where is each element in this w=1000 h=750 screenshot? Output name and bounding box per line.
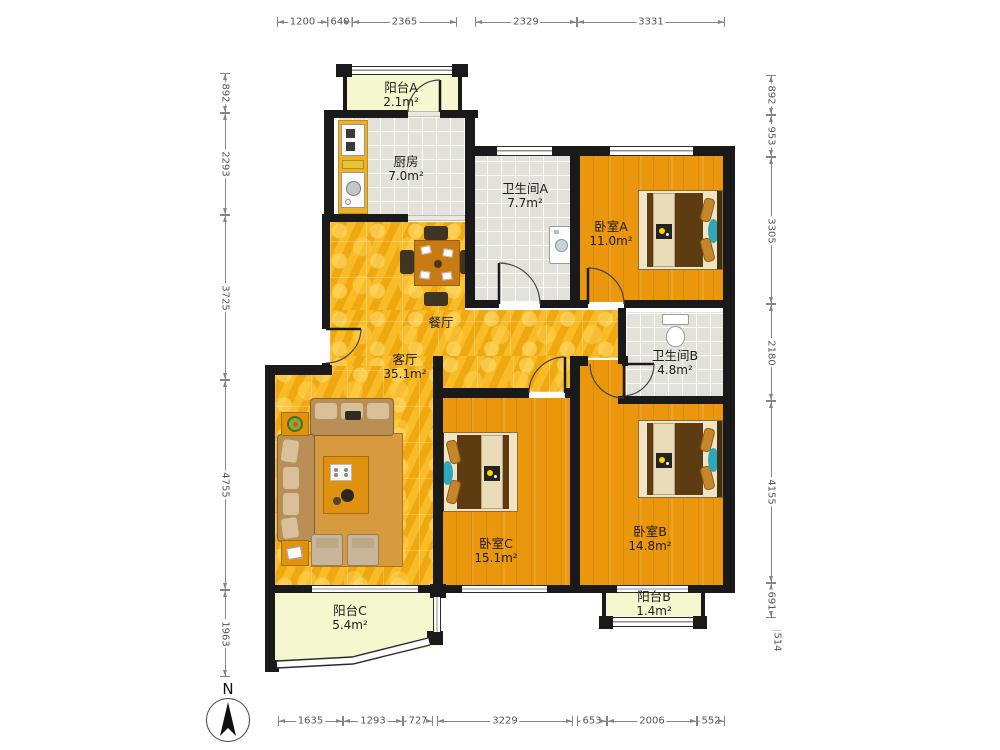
dining-chair-icon [400,250,414,274]
hall-floor [330,310,618,358]
window [312,585,418,593]
coffee-table-icon [323,456,369,514]
window [613,617,693,627]
room-label-bedroom-b: 卧室B14.8m² [628,524,671,553]
window [352,66,452,75]
sofa-icon [310,398,394,436]
kitchen-passage [408,215,465,221]
dimension-segment: 552 [697,714,725,728]
dimension-value: 2329 [511,17,540,28]
wall [723,146,735,593]
toilet-icon [662,314,689,349]
wall [265,585,312,593]
room-name: 客厅 [383,352,426,367]
dimension-segment: 953 [764,115,778,157]
room-label-dining: 餐厅 [428,315,453,330]
compass-icon [206,698,250,742]
wall [465,110,475,308]
dimension-segment: 2180 [764,304,778,401]
room-name: 厨房 [388,154,424,169]
dimension-segment: 2006 [607,714,697,728]
dimension-segment: 514 [770,630,784,653]
wall-post [427,631,443,645]
dining-chair-icon [424,292,448,306]
wall [343,74,347,112]
floor-plan: N 阳台A2.1m²厨房7.0m²卫生间A7.7m²卧室A11.0m²餐厅客厅3… [0,0,1000,750]
dimension-value: 3229 [490,716,519,727]
window [610,146,693,156]
dimension-value: 4755 [220,470,231,499]
wall [701,593,705,618]
wall [433,356,443,593]
kitchen-sink-icon [341,172,365,208]
dimension-value: 727 [406,716,429,727]
wall [433,388,529,398]
room-area: 4.8m² [652,363,698,377]
dimension-value: 892 [220,81,231,104]
dimension-value: 3725 [220,283,231,312]
dimension-segment: 1200 [277,15,328,29]
wall [578,146,610,156]
dimension-value: 640 [328,17,351,28]
wall [458,74,462,112]
dimension-segment: 4755 [218,380,232,590]
room-label-balcony-a: 阳台A2.1m² [383,80,419,109]
wall [324,110,334,222]
window [497,146,552,156]
window [462,585,547,593]
window [433,597,441,632]
wall [688,585,735,593]
room-area: 7.0m² [388,169,424,183]
hall-floor-bedc [441,356,570,392]
side-table-book-icon [281,540,309,566]
dimension-segment: 3229 [437,714,573,728]
room-name: 卧室C [474,536,517,551]
dimension-value: 1293 [358,716,387,727]
dimension-value: 953 [766,124,777,147]
dimension-segment: 2365 [352,15,457,29]
dimension-value: 892 [766,83,777,106]
sofa-l-icon [277,434,315,542]
dimension-segment: 3725 [218,215,232,380]
room-label-balcony-b: 阳台B1.4m² [636,589,672,618]
wall [622,356,628,366]
room-area: 5.4m² [332,618,368,632]
dining-chair-icon [424,226,448,240]
wall [624,300,735,308]
room-label-bedroom-a: 卧室A11.0m² [589,219,632,248]
wall [473,146,497,156]
room-label-bath-a: 卫生间A7.7m² [502,181,548,210]
wall [265,365,275,665]
room-area: 11.0m² [589,234,632,248]
wall [324,110,408,118]
dimension-value: 2180 [766,338,777,367]
dimension-segment: 1635 [278,714,343,728]
dimension-segment: 2293 [218,113,232,215]
dimension-segment: 640 [328,15,352,29]
bed-icon-bedroom-a [638,190,723,270]
room-area: 7.7m² [502,196,548,210]
dimension-value: 4155 [766,477,777,506]
room-name: 卫生间A [502,181,548,196]
dimension-value: 552 [699,716,722,727]
wall [322,214,330,329]
wall [602,593,606,618]
room-label-kitchen: 厨房7.0m² [388,154,424,183]
dimension-value: 1200 [288,17,317,28]
room-label-bath-b: 卫生间B4.8m² [652,348,698,377]
dimension-segment: 727 [403,714,433,728]
room-area: 14.8m² [628,539,671,553]
dimension-segment: 892 [218,73,232,113]
dimension-segment: 892 [764,75,778,115]
room-name: 卧室B [628,524,671,539]
dimension-segment: 2329 [475,15,577,29]
wall [540,300,578,308]
bed-icon-bedroom-b [638,420,723,498]
dimension-value: 2006 [637,716,666,727]
side-table-plant-icon [281,412,309,436]
dimension-value: 3305 [766,216,777,245]
washer-icon [549,226,572,264]
compass-north-label: N [222,680,233,698]
dimension-value: 514 [772,630,783,653]
room-area: 1.4m² [636,604,672,618]
wall [465,300,499,308]
dimension-value: 1963 [220,619,231,648]
wall [324,214,408,222]
room-area: 2.1m² [383,95,419,109]
room-label-bedroom-c: 卧室C15.1m² [474,536,517,565]
wall-post [430,584,446,598]
balcony-a-doorway [408,111,440,117]
room-area: 35.1m² [383,367,426,381]
bed-icon-bedroom-c [438,432,518,512]
wall [547,585,617,593]
dimension-segment: 1293 [343,714,403,728]
ottoman-icon [311,534,343,566]
wall [570,154,580,304]
wall [578,300,588,308]
room-name: 餐厅 [428,315,453,330]
dimension-value: 1635 [296,716,325,727]
cooktop-icon [341,124,365,156]
dimension-value: 3331 [636,17,665,28]
room-name: 阳台C [332,603,368,618]
room-label-living: 客厅35.1m² [383,352,426,381]
wall [265,365,332,375]
wall [618,396,735,404]
dimension-value: 2365 [390,17,419,28]
room-label-balcony-c: 阳台C5.4m² [332,603,368,632]
cutting-board-icon [342,160,364,169]
dimension-segment: 3305 [764,157,778,304]
room-area: 15.1m² [474,551,517,565]
dimension-segment: 691 [764,583,778,618]
dimension-value: 653 [580,716,603,727]
room-name: 卧室A [589,219,632,234]
room-name: 阳台B [636,589,672,604]
dimension-segment: 3331 [577,15,725,29]
dining-table-icon [414,240,460,286]
dimension-segment: 4155 [764,401,778,583]
wall-post [265,660,279,672]
ottoman-icon [347,534,379,566]
dimension-segment: 1963 [218,590,232,677]
room-name: 卫生间B [652,348,698,363]
dimension-segment: 653 [577,714,607,728]
room-name: 阳台A [383,80,419,95]
dimension-value: 2293 [220,149,231,178]
dimension-value: 691 [766,589,777,612]
wall [565,388,578,398]
